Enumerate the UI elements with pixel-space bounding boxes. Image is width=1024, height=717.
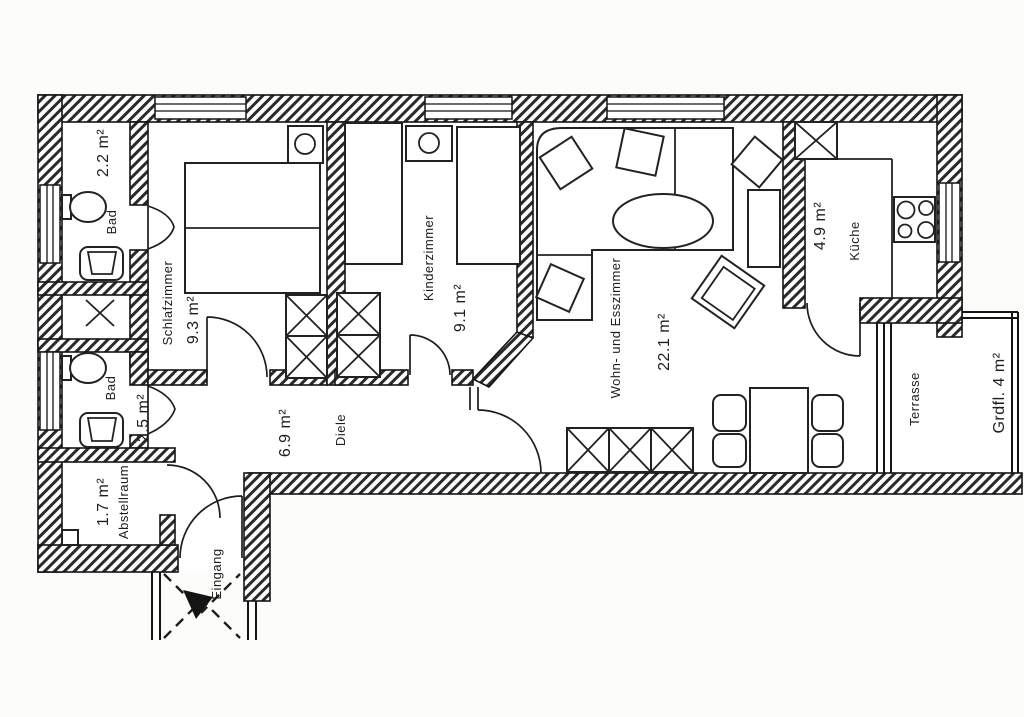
label-terrasse: Terrasse <box>907 372 922 426</box>
area-wohnzimmer: 22.1 m² <box>656 313 673 371</box>
area-diele: 6.9 m² <box>277 409 294 458</box>
coffee-table-icon <box>613 194 713 248</box>
label-kinderzimmer: Kinderzimmer <box>421 215 436 301</box>
kitchen-cabinet-icon <box>795 122 837 159</box>
chair-icon <box>713 434 746 467</box>
wall-shaft-bad2 <box>38 339 148 352</box>
toilet-icon <box>70 353 106 383</box>
wardrobe-icon <box>286 295 327 378</box>
bed-icon <box>457 127 520 264</box>
dining-table-icon <box>750 388 808 473</box>
wall-bottom-main <box>248 473 1022 494</box>
chair-icon <box>713 395 746 431</box>
wardrobe-icon <box>337 293 380 377</box>
label-bad-top: Bad <box>104 210 119 235</box>
nightstand-icon <box>288 126 323 163</box>
wall-bad-top-right-upper <box>130 122 148 205</box>
label-wohnzimmer: Wohn- und Esszimmer <box>608 257 623 398</box>
side-table-icon <box>748 190 780 267</box>
wall-kitchen-bottom <box>860 298 962 323</box>
cushion-icon <box>616 128 663 175</box>
label-kueche: Küche <box>847 221 862 260</box>
area-abstellraum: 1.7 m² <box>95 478 112 527</box>
wall-bad-shaft <box>38 282 148 295</box>
floor-plan-page: Bad 2.2 m² Schlafzimmer 9.3 m² Kinderzim… <box>0 0 1024 717</box>
chair-icon <box>812 395 843 431</box>
area-schlafzimmer: 9.3 m² <box>185 296 202 345</box>
chair-icon <box>812 434 843 467</box>
wall-bad2-right-upper <box>130 352 148 385</box>
area-bad-top: 2.2 m² <box>95 129 112 178</box>
dining-set <box>713 388 843 473</box>
abstellraum-fixture-icon <box>62 530 78 545</box>
toilet-icon <box>70 192 106 222</box>
wall-bottom-abstellraum <box>38 545 178 572</box>
label-bad-bottom: Bad <box>103 376 118 401</box>
floor-plan: Bad 2.2 m² Schlafzimmer 9.3 m² Kinderzim… <box>0 0 1024 717</box>
label-abstellraum: Abstellraum <box>116 465 131 539</box>
area-kueche: 4.9 m² <box>812 202 829 251</box>
stove-icon <box>894 197 935 242</box>
wall-left <box>38 95 62 572</box>
label-schlafzimmer: Schlafzimmer <box>160 260 175 345</box>
wall-kinderzimmer-bottom-right <box>452 370 473 385</box>
window-bad-bottom <box>40 352 60 430</box>
area-terrasse: Grdfl. 4 m² <box>991 352 1008 433</box>
wall-schlafzimmer-bottom-left <box>148 370 207 385</box>
window-kinderzimmer <box>425 97 512 119</box>
window-wohnzimmer <box>607 97 724 119</box>
window-kueche <box>939 183 960 262</box>
wall-entrance-right <box>244 473 270 601</box>
wall-bad2-abstellraum <box>38 448 175 462</box>
area-kinderzimmer: 9.1 m² <box>452 284 469 333</box>
label-diele: Diele <box>333 414 348 446</box>
bed-icon <box>345 123 402 264</box>
window-bad-top <box>40 185 60 263</box>
nightstand-icon <box>406 126 452 161</box>
area-bad-bottom: 2.5 m² <box>135 394 152 443</box>
label-eingang: Eingang <box>209 548 224 599</box>
window-schlafzimmer <box>155 97 246 119</box>
wall-abstellraum-right <box>160 515 175 545</box>
sideboard-icon <box>567 428 693 472</box>
